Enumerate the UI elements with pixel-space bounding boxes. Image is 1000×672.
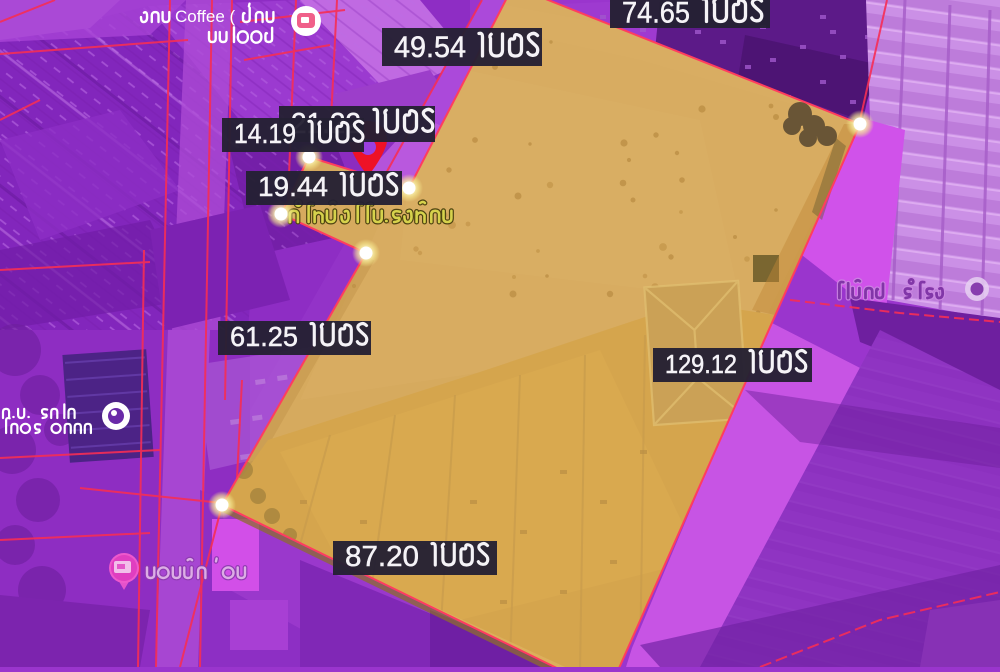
svg-text:61.25: 61.25: [230, 321, 298, 352]
svg-text:74.65: 74.65: [622, 0, 690, 30]
svg-text:14.19: 14.19: [234, 118, 296, 149]
svg-text:Coffee (: Coffee (: [175, 7, 236, 26]
svg-text:87.20: 87.20: [345, 541, 419, 573]
svg-text:129.12: 129.12: [665, 349, 737, 379]
svg-text:19.44: 19.44: [258, 171, 328, 202]
svg-text:49.54: 49.54: [394, 31, 466, 64]
